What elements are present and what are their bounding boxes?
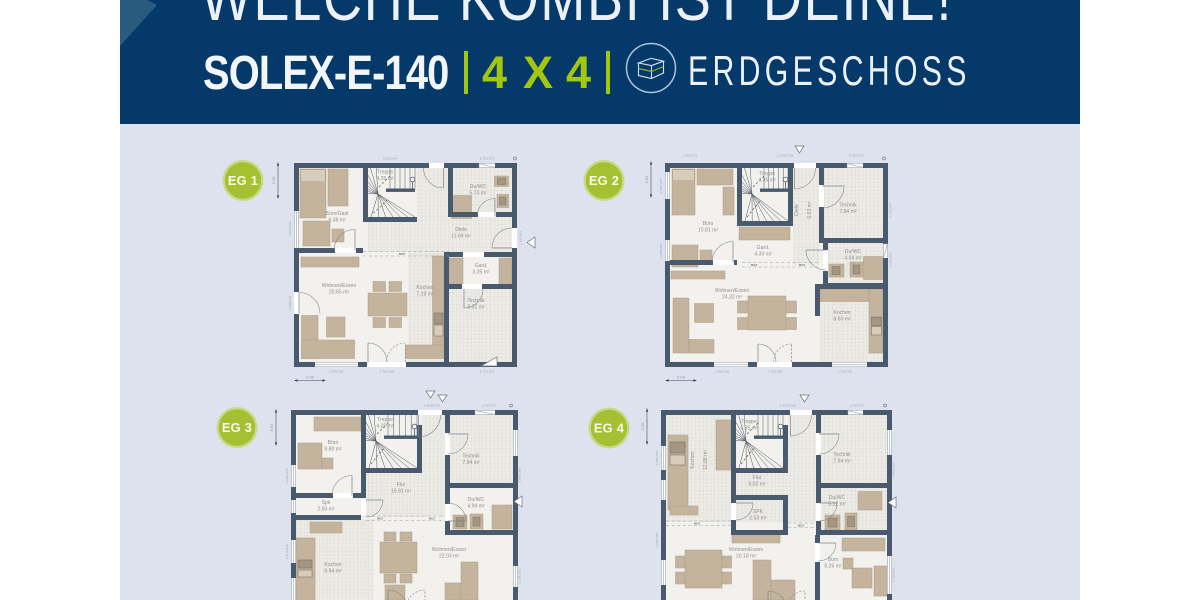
svg-text:1.13/02.215: 1.13/02.215 — [777, 154, 794, 158]
svg-text:0.75/1.072: 0.75/1.072 — [482, 404, 497, 408]
svg-text:10.91 m²: 10.91 m² — [391, 489, 411, 495]
svg-text:Büro: Büro — [828, 557, 839, 563]
svg-text:Wohnen/Essen: Wohnen/Essen — [322, 283, 357, 289]
svg-text:Kochen: Kochen — [324, 562, 341, 568]
svg-text:Kochen: Kochen — [416, 285, 433, 291]
svg-text:BUZ: BUZ — [377, 517, 383, 521]
svg-text:1.09/1.072: 1.09/1.072 — [288, 221, 292, 236]
svg-text:10.81 m²: 10.81 m² — [698, 228, 718, 234]
svg-text:BUZ: BUZ — [798, 524, 804, 528]
svg-text:1.13/0.915: 1.13/0.915 — [889, 252, 893, 267]
svg-text:Treppe: Treppe — [759, 171, 775, 177]
svg-text:Treppe: Treppe — [377, 170, 393, 176]
svg-text:Technik: Technik — [467, 298, 485, 304]
svg-text:Diele: Diele — [455, 227, 467, 233]
svg-text:Technik: Technik — [833, 452, 851, 458]
svg-text:BUZ: BUZ — [399, 252, 405, 256]
svg-text:4.35 m²: 4.35 m² — [376, 424, 394, 430]
svg-text:1.49/1.082: 1.49/1.082 — [715, 370, 730, 374]
svg-text:Büro: Büro — [703, 221, 714, 227]
svg-text:0.88/1.323: 0.88/1.323 — [518, 467, 522, 482]
svg-text:0.75/2.042: 0.75/2.042 — [383, 157, 398, 161]
svg-text:BUZ: BUZ — [429, 517, 435, 521]
svg-text:12.88 m²: 12.88 m² — [703, 450, 709, 470]
svg-text:7.94 m²: 7.94 m² — [833, 459, 851, 465]
svg-text:Kochen: Kochen — [833, 310, 850, 316]
svg-text:8.25 m²: 8.25 m² — [824, 564, 842, 570]
svg-text:8.60 m²: 8.60 m² — [833, 317, 851, 323]
svg-text:5.12 m²: 5.12 m² — [828, 502, 846, 508]
svg-text:9.68: 9.68 — [306, 375, 315, 380]
svg-text:7.94 m²: 7.94 m² — [839, 209, 857, 215]
svg-text:0.75/1.072: 0.75/1.072 — [850, 404, 865, 408]
svg-text:7.94 m²: 7.94 m² — [462, 460, 480, 466]
svg-text:Wohnen/Essen: Wohnen/Essen — [729, 547, 764, 553]
svg-text:20.65 m²: 20.65 m² — [329, 290, 349, 296]
svg-text:1.75/1.021: 1.75/1.021 — [838, 370, 853, 374]
svg-text:SPK: SPK — [753, 509, 764, 515]
svg-text:1.13/0.915: 1.13/0.915 — [518, 568, 522, 583]
svg-text:0.75/1.072: 0.75/1.072 — [849, 154, 864, 158]
svg-text:5.70 m²: 5.70 m² — [469, 191, 487, 197]
svg-text:Gard.: Gard. — [475, 263, 488, 269]
svg-text:1.09/1.072: 1.09/1.072 — [285, 468, 289, 483]
svg-text:2.53 m²: 2.53 m² — [749, 516, 767, 522]
svg-text:1.75/1.080: 1.75/1.080 — [768, 370, 783, 374]
svg-text:8.32 m²: 8.32 m² — [467, 305, 485, 311]
svg-text:Büro: Büro — [328, 440, 339, 446]
svg-text:Treppe: Treppe — [377, 417, 393, 423]
svg-text:Du/WC: Du/WC — [468, 497, 485, 503]
svg-text:1.01/1.013: 1.01/1.013 — [285, 544, 289, 559]
svg-text:Spk: Spk — [322, 500, 331, 506]
svg-text:Technik: Technik — [839, 203, 857, 209]
svg-text:1.43/02.219: 1.43/02.219 — [424, 404, 441, 408]
svg-text:1.13/0.915: 1.13/0.915 — [519, 230, 523, 245]
svg-text:BUZ: BUZ — [751, 263, 757, 267]
svg-text:4.35 m²: 4.35 m² — [376, 176, 394, 182]
svg-text:Flur: Flur — [397, 482, 406, 488]
svg-text:9.02 m²: 9.02 m² — [748, 482, 766, 488]
svg-text:BUZ: BUZ — [799, 263, 805, 267]
svg-text:6.73/1.673: 6.73/1.673 — [480, 370, 495, 374]
svg-text:9.38 m²: 9.38 m² — [328, 218, 346, 224]
svg-text:4.35 m²: 4.35 m² — [740, 426, 758, 432]
svg-text:Treppe: Treppe — [741, 419, 757, 425]
svg-text:7.19 m²: 7.19 m² — [416, 292, 434, 298]
svg-text:EG 1: EG 1 — [228, 173, 258, 188]
svg-text:4.35 m²: 4.35 m² — [758, 178, 776, 184]
svg-text:Du/WC: Du/WC — [470, 184, 487, 190]
svg-text:2.50 m²: 2.50 m² — [317, 507, 335, 513]
svg-text:11.69 m²: 11.69 m² — [451, 234, 471, 240]
svg-text:1.75/1.068: 1.75/1.068 — [380, 370, 395, 374]
svg-text:3.35 m²: 3.35 m² — [472, 270, 490, 276]
svg-text:8.94 m²: 8.94 m² — [324, 569, 342, 575]
svg-text:EG 3: EG 3 — [222, 420, 252, 435]
svg-text:0.88/1.323: 0.88/1.323 — [892, 462, 896, 477]
svg-text:1.09/2.062: 1.09/2.062 — [288, 295, 292, 310]
svg-text:Diele: Diele — [794, 204, 800, 216]
svg-text:BUZ: BUZ — [694, 522, 700, 526]
svg-text:1.75/1.072: 1.75/1.072 — [655, 450, 659, 465]
svg-text:4.94 m²: 4.94 m² — [467, 504, 485, 510]
svg-text:Wohnen/Essen: Wohnen/Essen — [432, 547, 467, 553]
svg-text:8.68: 8.68 — [640, 422, 645, 431]
svg-text:1.43/02.219: 1.43/02.219 — [780, 404, 797, 408]
svg-text:EG 4: EG 4 — [594, 420, 625, 435]
svg-text:Wohnen/Essen: Wohnen/Essen — [715, 288, 750, 294]
svg-text:2.73/1.072: 2.73/1.072 — [889, 202, 893, 217]
svg-text:8.80 m²: 8.80 m² — [324, 447, 342, 453]
svg-text:4.30 m²: 4.30 m² — [754, 252, 772, 258]
svg-text:8.68: 8.68 — [644, 175, 649, 184]
svg-text:8.68: 8.68 — [269, 423, 274, 432]
svg-text:1.13/0.915: 1.13/0.915 — [892, 567, 896, 582]
svg-text:5.53 m²: 5.53 m² — [807, 201, 813, 219]
svg-text:1.09/2.062: 1.09/2.062 — [329, 370, 344, 374]
svg-text:Kochen: Kochen — [690, 451, 696, 468]
svg-text:EG 2: EG 2 — [589, 173, 619, 188]
svg-text:1.09/2.062: 1.09/2.062 — [655, 532, 659, 547]
svg-text:Du/WC: Du/WC — [845, 249, 862, 255]
svg-text:6.73/1.673: 6.73/1.673 — [480, 157, 495, 161]
svg-text:8.68: 8.68 — [271, 176, 276, 185]
svg-text:22.03 m²: 22.03 m² — [439, 554, 459, 560]
svg-text:1.49/2.062: 1.49/2.062 — [659, 243, 663, 258]
svg-text:Du/WC: Du/WC — [829, 495, 846, 501]
svg-text:Büro/Gast: Büro/Gast — [326, 211, 350, 217]
svg-text:Flur: Flur — [753, 475, 762, 481]
svg-text:9.68: 9.68 — [677, 375, 686, 380]
svg-text:Gard.: Gard. — [757, 245, 770, 251]
svg-text:1.49/1.072: 1.49/1.072 — [683, 154, 698, 158]
svg-text:20.18 m²: 20.18 m² — [736, 554, 756, 560]
svg-text:Technik: Technik — [462, 454, 480, 460]
svg-text:24.32 m²: 24.32 m² — [722, 295, 742, 301]
svg-text:4.94 m²: 4.94 m² — [844, 256, 862, 262]
svg-text:1.49/1.072: 1.49/1.072 — [659, 178, 663, 193]
